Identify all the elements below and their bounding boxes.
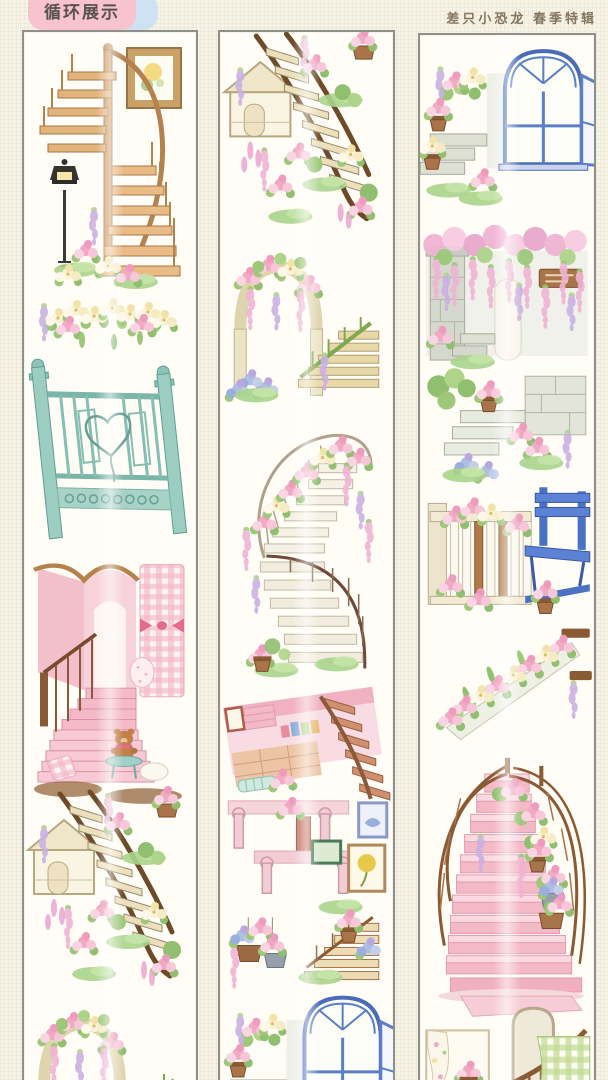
scene-wisteria-stone-gate bbox=[423, 225, 588, 369]
scene-stone-steps-blue-window bbox=[220, 998, 393, 1080]
scene-teal-iron-railing bbox=[28, 345, 190, 547]
tape-art-middle bbox=[220, 32, 393, 1080]
scene-rustic-garden-stairs bbox=[224, 32, 378, 229]
loop-display-label: 循环展示 bbox=[44, 3, 120, 22]
street-lamp-icon bbox=[50, 159, 79, 266]
scene-flower-arch-stairs bbox=[225, 253, 379, 403]
washi-tape-showcase: 循环展示 差只小恐龙 春季特辑 bbox=[0, 0, 608, 1080]
scene-picket-gate-blue-bench bbox=[428, 487, 590, 613]
tape-art-right bbox=[420, 35, 594, 1080]
tape-strip-right bbox=[418, 33, 596, 1080]
blue-bench-icon bbox=[525, 487, 590, 603]
scene-garden-stone-steps bbox=[427, 368, 585, 484]
scene-hanging-pots-stairs bbox=[229, 909, 381, 988]
tape-art-left bbox=[24, 32, 196, 1080]
tape-strip-left bbox=[22, 30, 198, 1080]
scene-white-spiral-staircase bbox=[242, 435, 373, 677]
brand-caption: 差只小恐龙 春季特辑 bbox=[446, 8, 597, 27]
scene-pink-attic-staircase bbox=[34, 565, 184, 804]
scene-pink-room-cutaway bbox=[223, 687, 390, 915]
scene-cottage-interior-stairs bbox=[426, 996, 590, 1080]
scene-wooden-spiral-staircase bbox=[40, 43, 181, 289]
scene-pink-curved-staircase bbox=[438, 758, 584, 1003]
loop-display-badge: 循环展示 bbox=[28, 0, 136, 30]
scene-flower-garland bbox=[39, 298, 178, 350]
tape-strip-middle bbox=[218, 30, 395, 1080]
scene-flower-covered-railing bbox=[436, 629, 592, 740]
scene-flower-arch-stairs bbox=[29, 1010, 183, 1080]
scene-rustic-garden-stairs bbox=[28, 786, 181, 986]
scene-stone-steps-blue-window bbox=[420, 51, 594, 205]
